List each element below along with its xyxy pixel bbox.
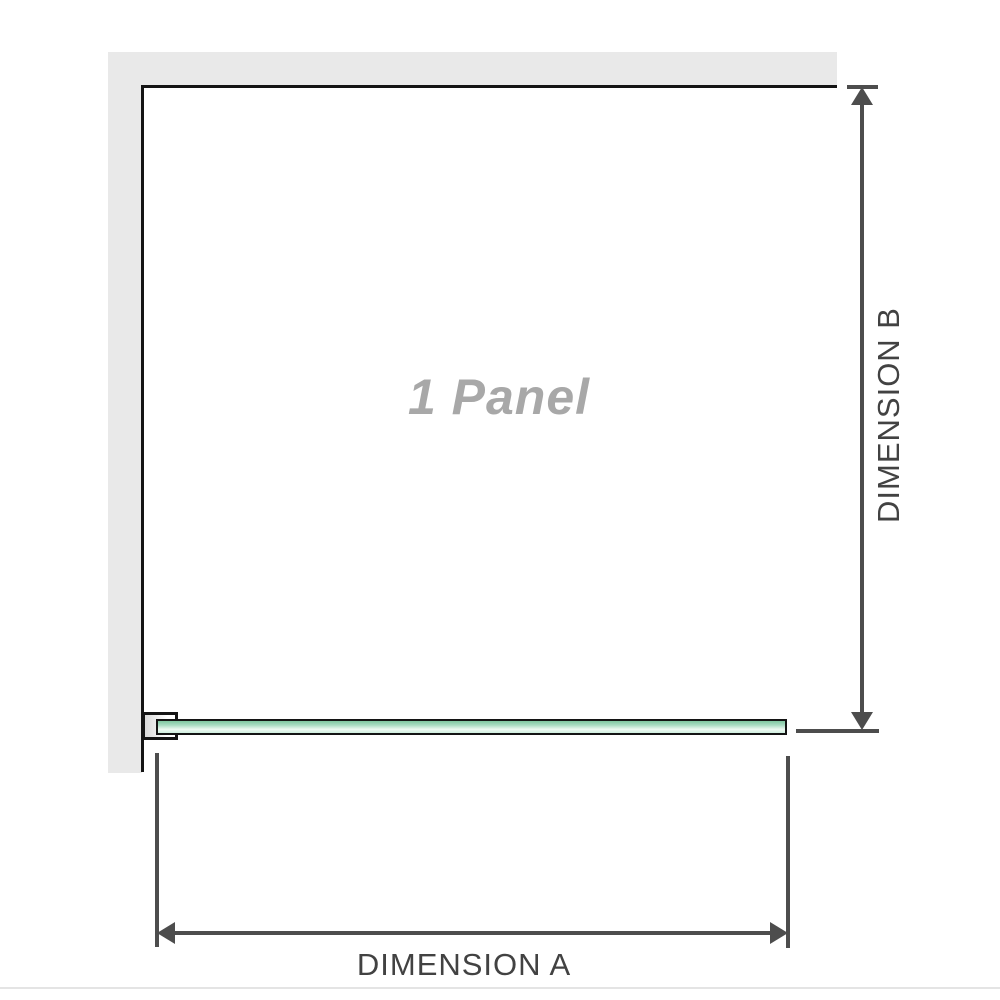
dimension-a-left-extension (155, 753, 159, 947)
dimension-a-right-extension (786, 756, 790, 948)
wall-left-band (108, 52, 142, 773)
wall-inner-edge-top (141, 85, 837, 88)
shower-panel-dimension-diagram: 1 Panel DIMENSION B DIMENSION A (0, 0, 1000, 1000)
bottom-divider-line (0, 987, 1000, 989)
glass-panel (156, 719, 787, 735)
wall-inner-edge-left (141, 85, 144, 772)
arrow-left-icon (157, 922, 175, 944)
dimension-b-line (860, 100, 864, 712)
arrow-right-icon (770, 922, 788, 944)
arrow-down-icon (851, 712, 873, 730)
arrow-up-icon (851, 87, 873, 105)
dimension-b-label: DIMENSION B (871, 307, 907, 523)
panel-count-label: 1 Panel (408, 368, 590, 426)
dimension-a-line (165, 931, 781, 935)
dimension-a-label: DIMENSION A (357, 947, 571, 983)
wall-top-band (108, 52, 837, 85)
